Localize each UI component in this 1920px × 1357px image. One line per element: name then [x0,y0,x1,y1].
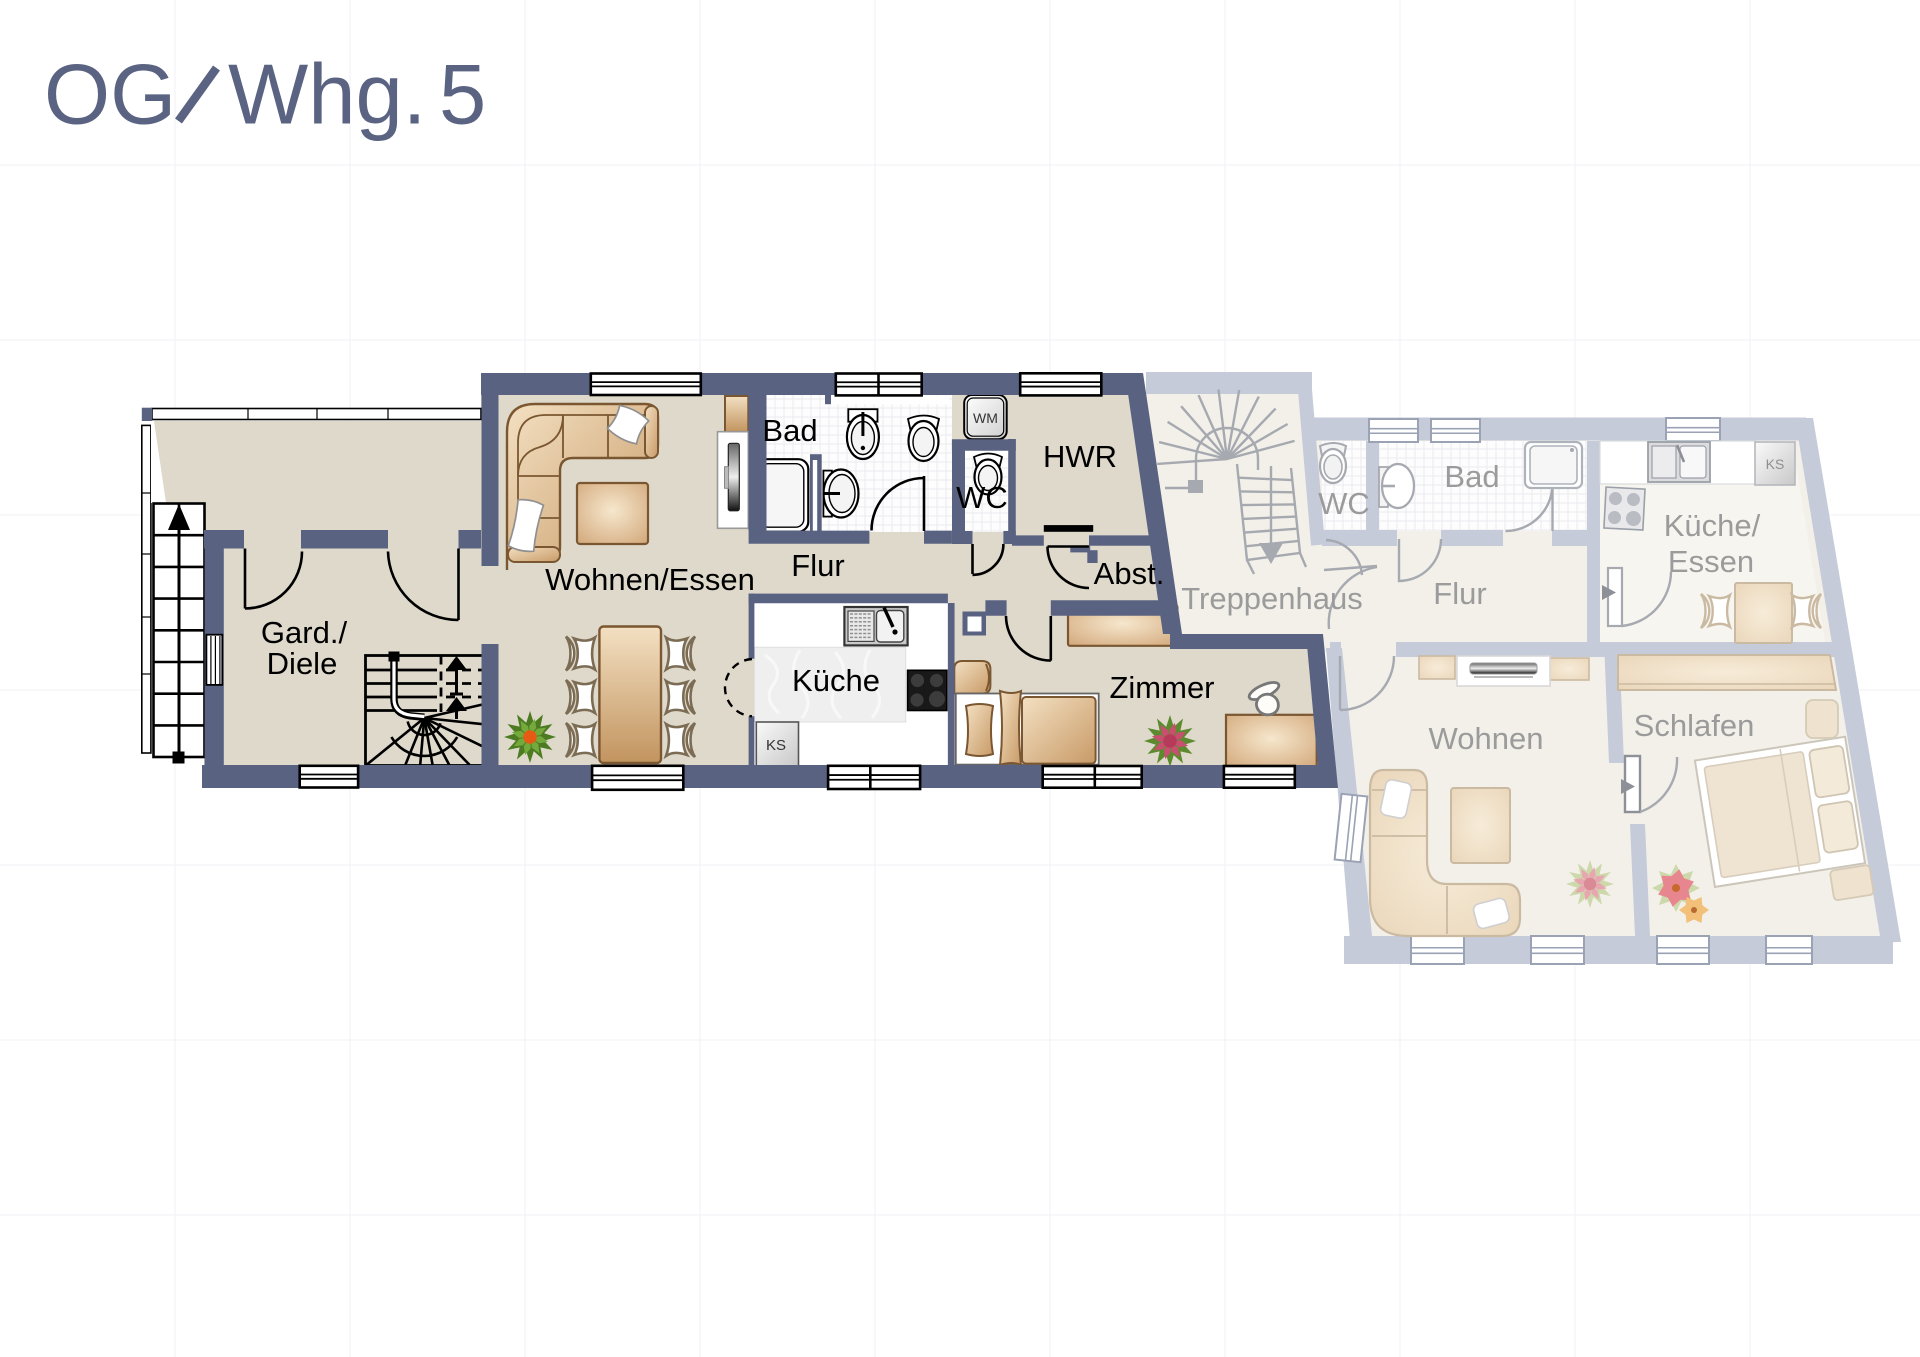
svg-text:WC: WC [1318,486,1370,521]
svg-text:Küche/: Küche/ [1664,508,1761,543]
svg-text:Küche: Küche [792,663,880,698]
svg-text:Bad: Bad [1444,459,1499,494]
svg-text:WC: WC [956,480,1008,515]
svg-text:Flur: Flur [791,548,844,583]
svg-text:Schlafen: Schlafen [1634,708,1755,743]
svg-text:Flur: Flur [1433,576,1486,611]
svg-text:Treppenhaus: Treppenhaus [1181,581,1363,616]
svg-text:Wohnen/Essen: Wohnen/Essen [545,562,755,597]
svg-text:OGWhg.5: OGWhg.5 [44,48,486,143]
svg-text:Abst.: Abst. [1094,556,1165,591]
svg-text:HWR: HWR [1043,439,1117,474]
svg-text:Essen: Essen [1668,544,1754,579]
svg-text:Bad: Bad [762,413,817,448]
svg-text:Diele: Diele [267,646,338,681]
svg-text:Zimmer: Zimmer [1109,670,1214,705]
svg-text:KS: KS [766,737,786,754]
svg-text:WM: WM [973,410,998,426]
svg-text:Wohnen: Wohnen [1429,721,1544,756]
svg-text:KS: KS [1766,456,1785,472]
svg-text:Gard./: Gard./ [261,615,348,650]
